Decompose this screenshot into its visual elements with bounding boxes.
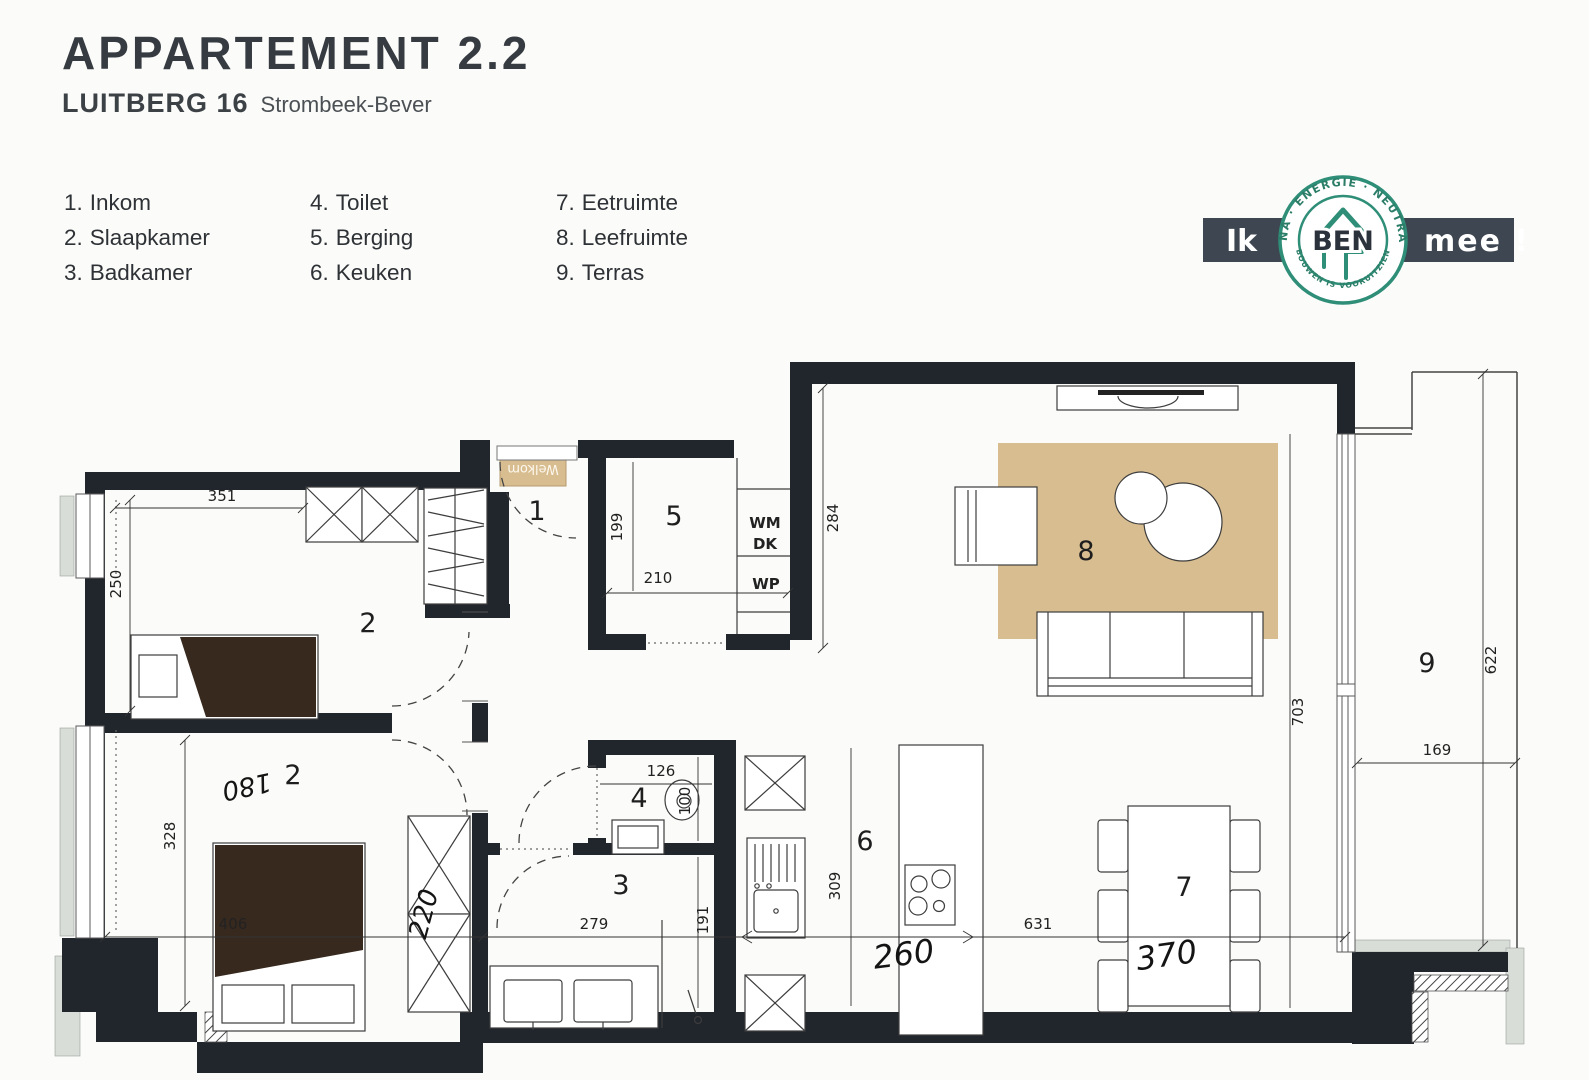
- legend-item: 4.Toilet: [310, 190, 478, 216]
- ben-logo: BEN BIJNA · ENERGIE · NEUTRAAL BOUWEN IS…: [1196, 170, 1589, 320]
- armchair: [955, 487, 1037, 565]
- legend-item: 7.Eetruimte: [556, 190, 724, 216]
- label-dk: DK: [753, 535, 778, 553]
- logo-mee-text: mee !: [1424, 224, 1530, 259]
- wardrobe-top: [306, 487, 418, 542]
- legend-item: 5.Berging: [310, 225, 478, 251]
- floor-plan-drawing: 351 250 328 406 199 210 126 100 191 279 …: [0, 0, 1589, 1080]
- legend-item: 3.Badkamer: [64, 260, 232, 286]
- bed-top: [131, 635, 318, 719]
- dim-199: 199: [608, 513, 626, 542]
- dim-126: 126: [647, 762, 676, 780]
- dim-309: 309: [826, 872, 844, 901]
- kitchen-island: [899, 745, 983, 1035]
- subtitle: LUITBERG 16 Strombeek-Bever: [62, 88, 530, 119]
- page-title: APPARTEMENT 2.2: [62, 26, 530, 80]
- kitchen-cabinets: [745, 756, 805, 1031]
- dim-622: 622: [1482, 646, 1500, 675]
- legend-item: 1.Inkom: [64, 190, 232, 216]
- room-label-slaapkamer-top: 2: [359, 608, 376, 639]
- legend-item: 9.Terras: [556, 260, 724, 286]
- legend-item: 6.Keuken: [310, 260, 478, 286]
- dim-703: 703: [1289, 698, 1307, 727]
- handwritten-260: 260: [871, 932, 936, 977]
- room-label-leefruimte: 8: [1077, 536, 1094, 567]
- tv: [1098, 390, 1204, 395]
- label-welkom: Welkom: [507, 461, 558, 476]
- bedroom-bottom-door-swing: [392, 740, 467, 815]
- entry-door-frame: [497, 446, 577, 460]
- coat-closet: [424, 488, 487, 604]
- room-label-keuken: 6: [856, 826, 873, 857]
- dim-279: 279: [580, 915, 609, 933]
- dim-250: 250: [107, 570, 125, 599]
- room-label-toilet: 4: [630, 783, 647, 814]
- room-label-inkom: 1: [528, 496, 545, 527]
- dim-351: 351: [208, 487, 237, 505]
- legend-column-3: 7.Eetruimte 8.Leefruimte 9.Terras: [556, 190, 724, 286]
- room-label-terras: 9: [1418, 648, 1435, 679]
- room-legend: 1.Inkom 2.Slaapkamer 3.Badkamer 4.Toilet…: [64, 190, 724, 286]
- floor-plan-page: APPARTEMENT 2.2 LUITBERG 16 Strombeek-Be…: [0, 0, 1589, 1080]
- label-wm: WM: [749, 514, 780, 532]
- dim-631: 631: [1024, 915, 1053, 933]
- room-label-badkamer: 3: [612, 870, 629, 901]
- dim-328: 328: [161, 822, 179, 851]
- handwritten-180: 180: [219, 766, 274, 806]
- logo-center-text: BEN: [1312, 226, 1374, 257]
- legend-item: 2.Slaapkamer: [64, 225, 232, 251]
- dim-284: 284: [824, 504, 842, 533]
- tv-console: [1057, 386, 1238, 410]
- legend-item: 8.Leefruimte: [556, 225, 724, 251]
- project-name: LUITBERG 16: [62, 88, 249, 119]
- handwritten-notes: 260 370 220 180: [219, 766, 1199, 978]
- toilet-door-swing: [519, 766, 596, 843]
- dim-191: 191: [694, 906, 712, 935]
- header: APPARTEMENT 2.2 LUITBERG 16 Strombeek-Be…: [62, 26, 530, 119]
- coffee-table-small: [1115, 472, 1167, 524]
- dim-406: 406: [219, 915, 248, 933]
- label-wp: WP: [752, 575, 780, 593]
- dining-set: [1098, 806, 1260, 1012]
- sofa: [1037, 612, 1263, 696]
- room-label-slaapkamer-bottom: 2: [284, 760, 301, 791]
- city-name: Strombeek-Bever: [261, 92, 432, 118]
- room-label-berging: 5: [665, 501, 682, 532]
- bedroom-top-door-swing: [392, 632, 469, 706]
- logo-ik-text: Ik: [1226, 224, 1258, 259]
- bathroom-door-swing: [497, 856, 569, 928]
- dim-210: 210: [644, 569, 673, 587]
- room-label-eetruimte: 7: [1175, 872, 1192, 903]
- hob: [905, 865, 955, 925]
- legend-column-2: 4.Toilet 5.Berging 6.Keuken: [310, 190, 478, 286]
- dim-169: 169: [1423, 741, 1452, 759]
- dim-100: 100: [676, 787, 694, 816]
- legend-column-1: 1.Inkom 2.Slaapkamer 3.Badkamer: [64, 190, 232, 286]
